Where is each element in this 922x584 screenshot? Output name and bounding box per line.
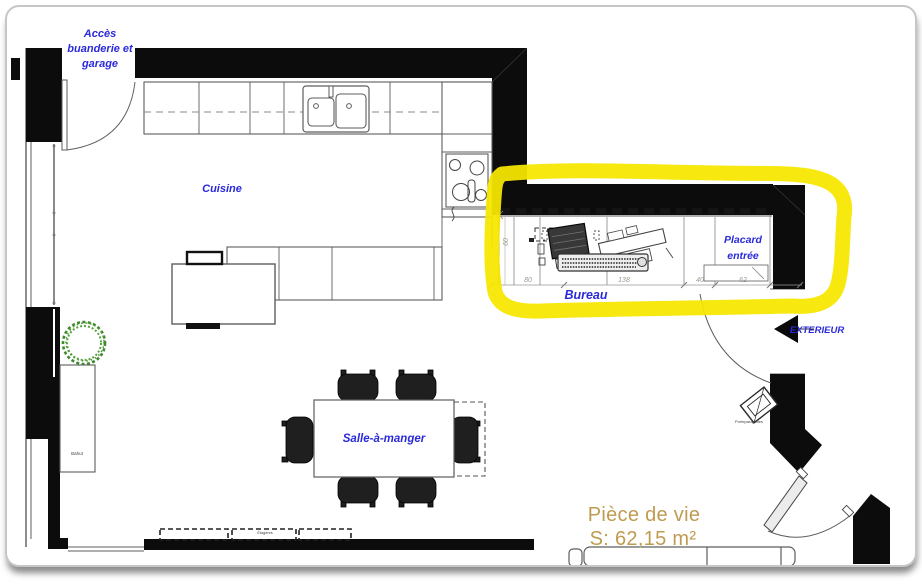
sink: [303, 86, 369, 132]
wall-entry-upper: [770, 374, 822, 473]
piece-de-vie-label: Pièce de vie: [588, 504, 701, 526]
wall-left-lower: [48, 439, 60, 541]
exterieur-label: EXTERIEUR: [790, 325, 845, 336]
plant: [63, 322, 105, 364]
wall-entry-lower: [853, 494, 890, 564]
keyboard: [558, 254, 648, 271]
rounded-picture-frame: Accès buanderie et garage Cuisine Bureau…: [5, 5, 917, 567]
etageres-dashed: [160, 529, 351, 540]
placard-label-line2: entrée: [727, 250, 759, 262]
floor-plan-canvas: Accès buanderie et garage Cuisine Bureau…: [5, 5, 917, 567]
front-door: [764, 467, 854, 537]
laundry-door: [62, 80, 135, 150]
bureau-label: Bureau: [564, 288, 607, 302]
wall-top: [135, 48, 527, 78]
dim-80: 80: [524, 277, 532, 284]
kitchen-island: [172, 252, 275, 329]
etageres-label: Étagères: [257, 530, 272, 535]
dim-62: 62: [739, 277, 747, 284]
piece-de-vie-surface: S: 62,15 m²: [590, 528, 697, 550]
cuisine-label: Cuisine: [202, 183, 242, 195]
access-label-line2: buanderie et: [67, 43, 134, 55]
wall-left-foot: [48, 538, 68, 549]
wall-placard-right: [773, 185, 805, 289]
porte-parapluies-label: Porteparapluies: [735, 419, 763, 424]
placard-label-line1: Placard: [724, 234, 763, 246]
wall-left-stub: [11, 58, 20, 80]
access-label-line1: Accès: [83, 28, 116, 40]
dim-60: 60: [503, 238, 510, 246]
floor-plan-screenshot: Accès buanderie et garage Cuisine Bureau…: [0, 0, 922, 584]
dim-40: 40: [696, 277, 704, 284]
bahut-label: Bahut: [71, 451, 84, 456]
left-window: [53, 144, 56, 377]
dim-138: 138: [618, 277, 630, 284]
wall-left-top-block: [26, 48, 62, 142]
access-label-line3: garage: [81, 58, 118, 70]
salle-a-manger-label: Salle-à-manger: [343, 433, 426, 445]
